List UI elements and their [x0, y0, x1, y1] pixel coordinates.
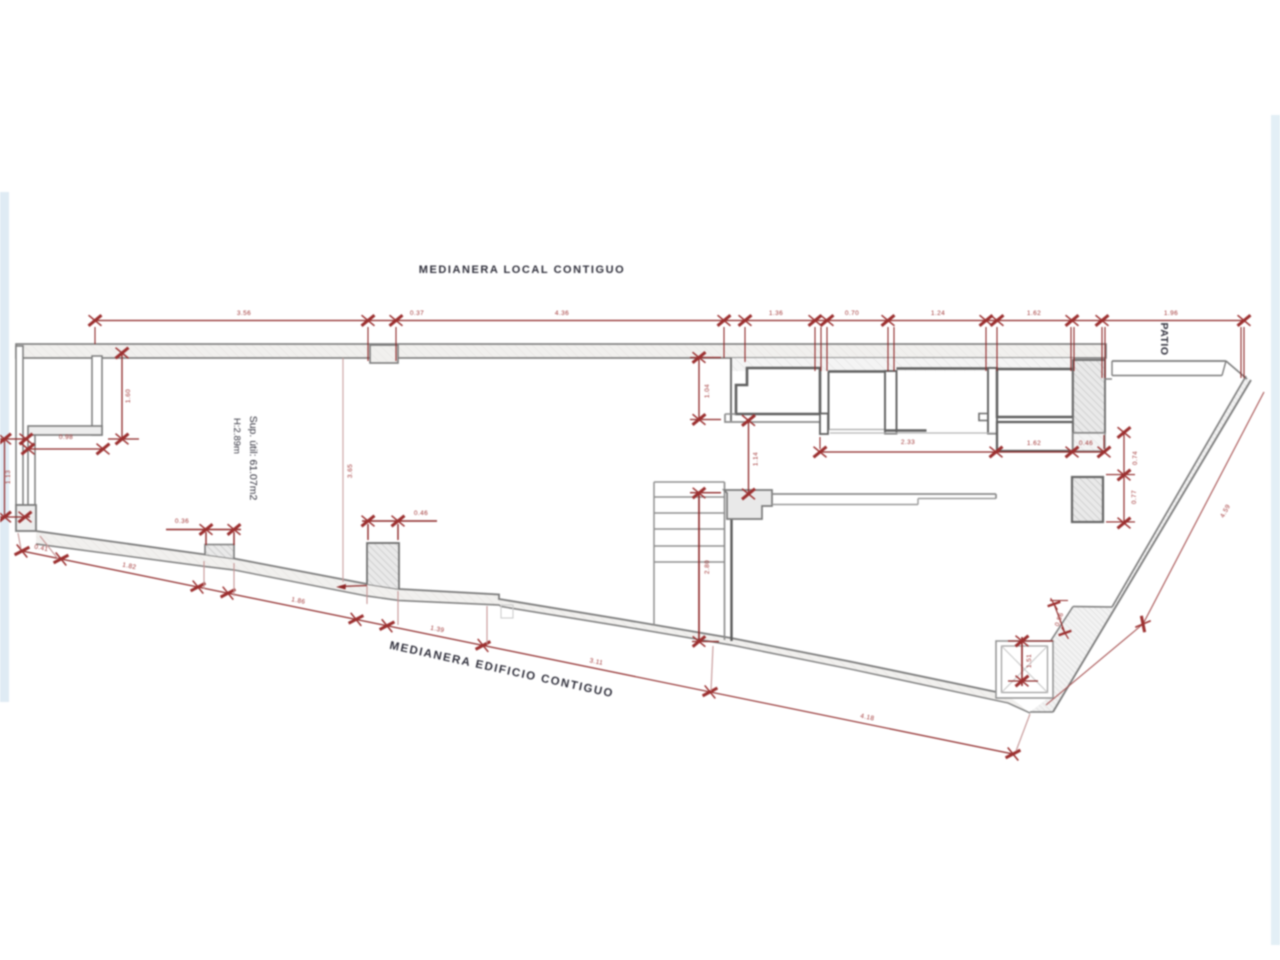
- svg-text:1.62: 1.62: [1027, 440, 1041, 447]
- svg-text:1.62: 1.62: [1027, 310, 1041, 317]
- svg-text:Sup. útil: 61.07m2: Sup. útil: 61.07m2: [247, 416, 259, 501]
- svg-text:0.46: 0.46: [1079, 440, 1093, 447]
- svg-text:3.56: 3.56: [237, 310, 251, 317]
- svg-text:1.96: 1.96: [1164, 310, 1178, 317]
- svg-text:1.24: 1.24: [931, 310, 945, 317]
- svg-text:0.46: 0.46: [414, 510, 428, 517]
- svg-text:1.14: 1.14: [753, 452, 760, 466]
- svg-text:0.70: 0.70: [845, 310, 859, 317]
- svg-text:1.04: 1.04: [704, 384, 711, 398]
- svg-text:H:2.89m: H:2.89m: [231, 418, 242, 454]
- svg-text:1.36: 1.36: [769, 310, 783, 317]
- svg-text:3.65: 3.65: [347, 464, 354, 478]
- svg-text:1.13: 1.13: [5, 470, 12, 484]
- svg-text:1.60: 1.60: [125, 389, 132, 403]
- svg-text:MEDIANERA LOCAL CONTIGUO: MEDIANERA LOCAL CONTIGUO: [419, 264, 625, 276]
- svg-text:1.51: 1.51: [1026, 654, 1033, 668]
- svg-text:2.80: 2.80: [704, 560, 711, 574]
- svg-text:0.36: 0.36: [175, 518, 189, 525]
- svg-text:0.77: 0.77: [1131, 490, 1138, 504]
- svg-text:0.98: 0.98: [59, 434, 73, 441]
- svg-text:0.74: 0.74: [1132, 451, 1139, 465]
- svg-text:0.37: 0.37: [410, 310, 424, 317]
- svg-text:2.33: 2.33: [901, 439, 915, 446]
- svg-text:PATIO: PATIO: [1158, 322, 1170, 355]
- svg-text:4.36: 4.36: [555, 310, 569, 317]
